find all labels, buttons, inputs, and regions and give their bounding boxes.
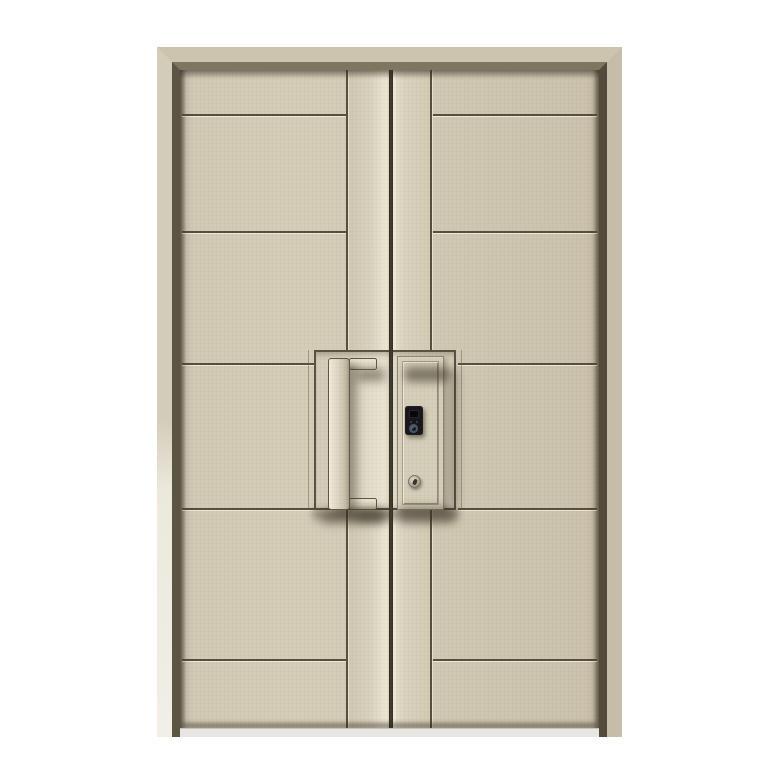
handle-top-arm — [349, 358, 377, 370]
keyhole — [408, 475, 421, 488]
door-leaves — [180, 70, 599, 728]
door-groove — [432, 114, 597, 117]
lock-indicator-dot — [410, 421, 412, 423]
frame-light-reflection — [157, 419, 172, 737]
door-groove — [182, 659, 346, 662]
pull-handle-grip — [328, 358, 350, 510]
handle-mounting-plate — [314, 350, 389, 510]
keyhole-slot — [412, 478, 418, 485]
door-groove — [432, 231, 597, 234]
entry-door-unit — [157, 47, 622, 737]
fingerprint-reader-icon — [409, 424, 418, 433]
left-stile-edge-line — [346, 510, 349, 728]
threshold — [180, 728, 599, 737]
door-opening — [180, 70, 599, 737]
product-photo-stage — [0, 0, 780, 780]
door-groove — [458, 363, 597, 366]
right-stile-edge-line — [430, 510, 433, 728]
door-meeting-gap — [389, 70, 393, 728]
lock-indicator-dot — [416, 421, 418, 423]
handle-bottom-arm — [349, 498, 377, 510]
door-groove — [182, 114, 346, 117]
door-groove — [182, 508, 314, 511]
lock-display — [409, 410, 419, 418]
smart-lock-module — [405, 406, 423, 435]
door-groove — [432, 659, 597, 662]
door-groove — [182, 363, 314, 366]
right-stile-edge-line — [430, 70, 433, 350]
door-groove — [458, 508, 597, 511]
door-groove — [182, 231, 346, 234]
left-stile-edge-line — [346, 70, 349, 350]
